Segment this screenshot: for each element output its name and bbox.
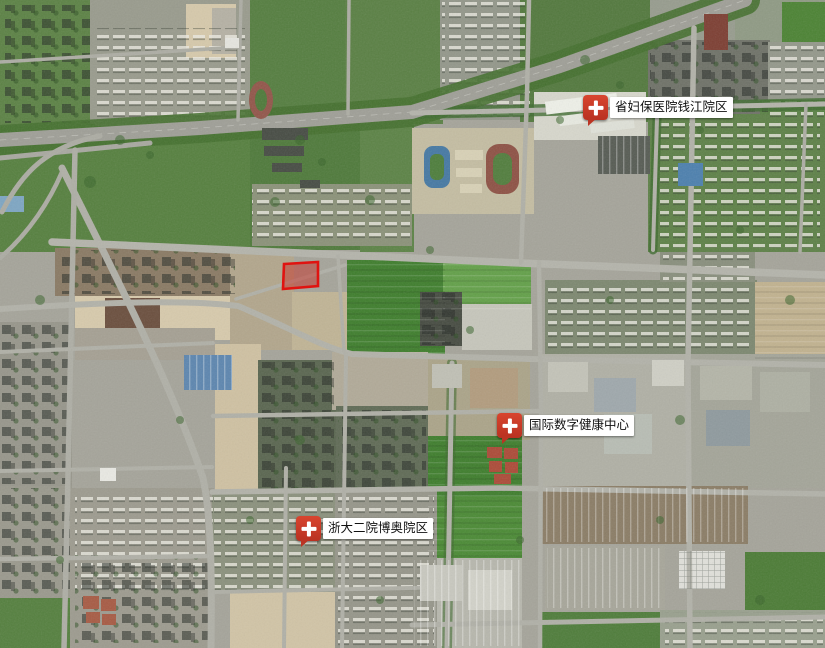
satellite-map-view[interactable]: 省妇保医院钱江院区 国际数字健康中心 浙大二院博奥院区 bbox=[0, 0, 825, 648]
selected-plot-overlay[interactable] bbox=[283, 262, 318, 289]
poi-marker-international-digital-health-center[interactable]: 国际数字健康中心 bbox=[497, 413, 634, 438]
red-plus-pin-icon bbox=[583, 95, 608, 120]
poi-label: 国际数字健康中心 bbox=[524, 415, 634, 436]
poi-label: 浙大二院博奥院区 bbox=[323, 518, 433, 539]
plus-glyph bbox=[583, 95, 608, 120]
poi-marker-provincial-maternity-hospital[interactable]: 省妇保医院钱江院区 bbox=[583, 95, 733, 120]
red-plus-pin-icon bbox=[296, 516, 321, 541]
plus-glyph bbox=[296, 516, 321, 541]
poi-marker-zheda-second-hospital-boao-campus[interactable]: 浙大二院博奥院区 bbox=[296, 516, 433, 541]
poi-label: 省妇保医院钱江院区 bbox=[610, 97, 733, 118]
red-plus-pin-icon bbox=[497, 413, 522, 438]
plus-glyph bbox=[497, 413, 522, 438]
